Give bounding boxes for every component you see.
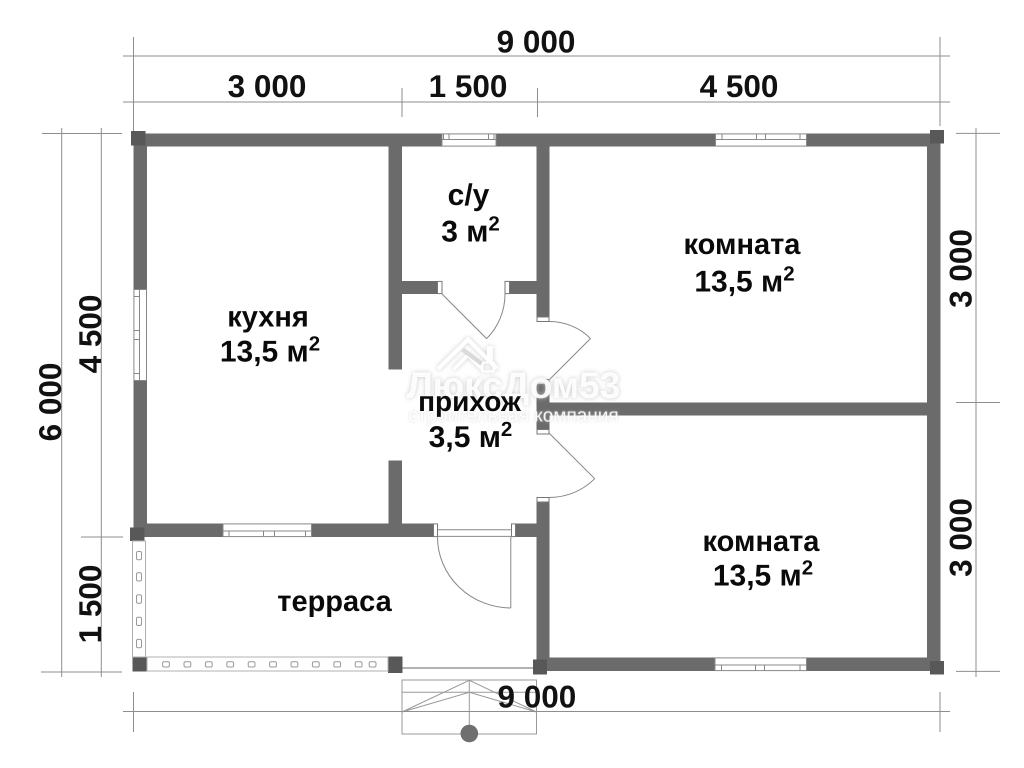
svg-text:комната: комната (703, 526, 821, 558)
svg-text:терраса: терраса (277, 586, 392, 618)
svg-text:13,5 м2: 13,5 м2 (694, 263, 794, 299)
svg-text:13,5 м2: 13,5 м2 (713, 557, 813, 593)
svg-text:комната: комната (684, 229, 802, 261)
svg-text:6 000: 6 000 (32, 363, 68, 442)
svg-text:3 000: 3 000 (943, 498, 979, 577)
svg-text:4 500: 4 500 (72, 295, 108, 374)
svg-text:13,5 м2: 13,5 м2 (220, 333, 320, 369)
svg-text:1 500: 1 500 (72, 565, 108, 644)
svg-text:3 000: 3 000 (228, 68, 307, 104)
svg-text:с/у: с/у (448, 179, 490, 212)
svg-text:1 500: 1 500 (429, 68, 508, 104)
svg-text:9 000: 9 000 (497, 679, 576, 715)
svg-text:9 000: 9 000 (497, 24, 576, 60)
svg-text:3 000: 3 000 (943, 229, 979, 308)
svg-text:4 500: 4 500 (700, 68, 779, 104)
svg-text:кухня: кухня (227, 302, 309, 334)
svg-text:прихож: прихож (418, 386, 522, 417)
svg-text:3,5 м2: 3,5 м2 (429, 418, 513, 454)
